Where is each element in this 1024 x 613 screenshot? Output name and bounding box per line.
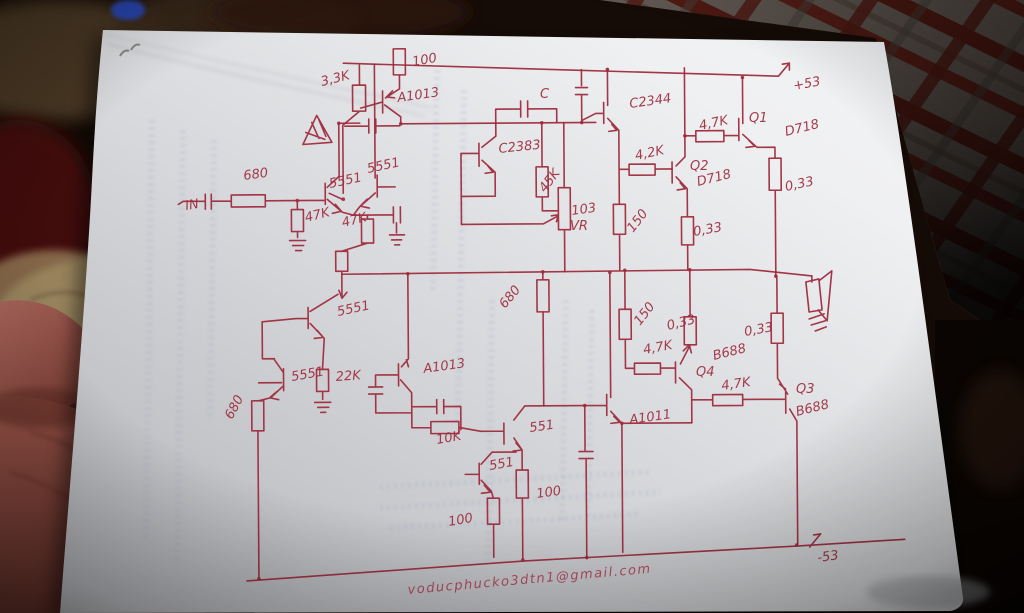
photo-vignette [0, 0, 1024, 613]
photo-of-hand-drawn-schematic: 3,3K 100 A1013 C C2383 C2344 4,7K Q1 D71… [0, 0, 1024, 613]
